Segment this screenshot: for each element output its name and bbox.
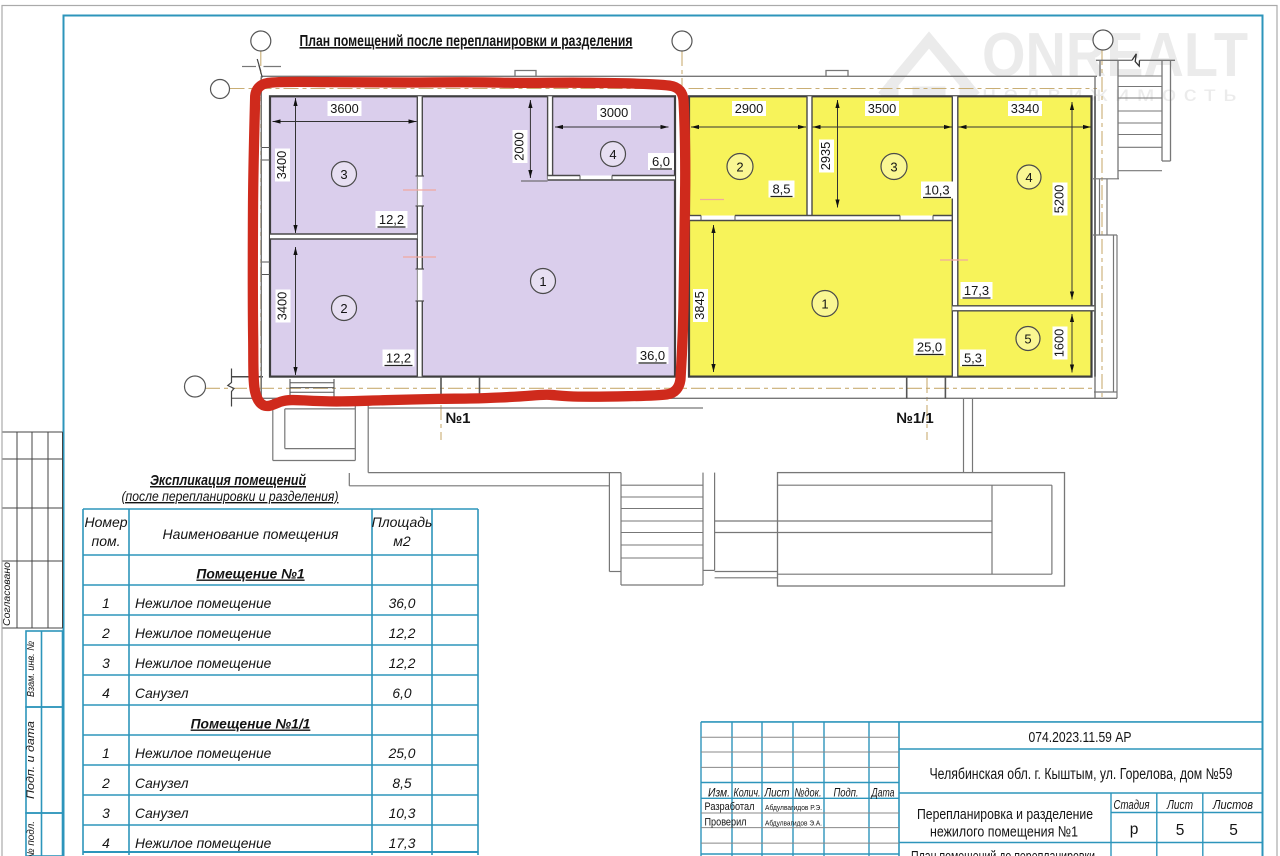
svg-text:м2: м2 [393, 533, 411, 549]
svg-text:2900: 2900 [735, 101, 763, 116]
svg-text:3: 3 [102, 806, 110, 821]
svg-text:3500: 3500 [868, 101, 896, 116]
svg-text:4: 4 [102, 686, 110, 701]
svg-text:Абдулвагидов Э.А.: Абдулвагидов Э.А. [765, 819, 822, 828]
svg-text:5: 5 [1176, 822, 1185, 839]
svg-text:1: 1 [102, 746, 110, 761]
svg-text:Номер: Номер [84, 514, 127, 530]
svg-text:Помещение №1/1: Помещение №1/1 [191, 717, 311, 732]
svg-text:36,0: 36,0 [389, 596, 416, 611]
svg-text:5,3: 5,3 [964, 351, 982, 366]
svg-text:№ подл.: № подл. [26, 821, 37, 856]
svg-text:План помещений после переплани: План помещений после перепланировки и ра… [300, 33, 633, 50]
svg-text:3: 3 [890, 159, 897, 174]
svg-text:Подп. и дата: Подп. и дата [25, 721, 37, 799]
svg-text:3340: 3340 [1011, 101, 1039, 116]
svg-text:4: 4 [102, 836, 110, 851]
svg-text:Нежилое помещение: Нежилое помещение [135, 656, 272, 671]
svg-text:074.2023.11.59 АР: 074.2023.11.59 АР [1029, 729, 1132, 746]
svg-text:1: 1 [539, 274, 546, 289]
svg-text:1: 1 [102, 596, 110, 611]
svg-text:10,3: 10,3 [389, 806, 416, 821]
svg-text:Санузел: Санузел [135, 686, 189, 701]
svg-text:5: 5 [1229, 822, 1238, 839]
svg-text:6,0: 6,0 [392, 686, 412, 701]
svg-text:Лист: Лист [1166, 798, 1193, 812]
svg-text:Челябинская обл. г. Кыштым, ул: Челябинская обл. г. Кыштым, ул. Горелова… [930, 766, 1233, 783]
svg-text:Проверил: Проверил [705, 817, 747, 829]
svg-text:Изм.: Изм. [708, 786, 730, 800]
svg-text:Экспликация помещений: Экспликация помещений [150, 472, 306, 489]
svg-text:Стадия: Стадия [1114, 798, 1150, 812]
svg-text:2000: 2000 [511, 132, 526, 160]
svg-text:Подп.: Подп. [834, 786, 859, 800]
svg-text:р: р [1130, 821, 1139, 838]
svg-text:№док.: №док. [795, 786, 822, 800]
svg-text:3000: 3000 [600, 105, 628, 120]
svg-text:№1/1: №1/1 [896, 410, 934, 427]
svg-text:Листов: Листов [1212, 798, 1253, 812]
svg-text:12,2: 12,2 [389, 626, 416, 641]
svg-text:2: 2 [101, 626, 110, 641]
svg-text:Санузел: Санузел [135, 776, 189, 791]
svg-text:2935: 2935 [818, 142, 833, 170]
svg-text:План помещений до перепланиров: План помещений до перепланировки [911, 848, 1095, 856]
svg-text:Дата: Дата [870, 786, 895, 800]
svg-text:17,3: 17,3 [389, 836, 416, 851]
svg-text:12,2: 12,2 [379, 212, 404, 227]
svg-text:10,3: 10,3 [924, 183, 949, 198]
svg-text:Абдулвагидов Р.Э.: Абдулвагидов Р.Э. [765, 803, 822, 812]
svg-text:3400: 3400 [274, 292, 289, 320]
svg-text:ONREALT: ONREALT [982, 21, 1248, 90]
svg-text:4: 4 [609, 147, 616, 162]
svg-text:Помещение №1: Помещение №1 [196, 567, 304, 582]
svg-text:Наименование помещения: Наименование помещения [162, 526, 339, 542]
svg-text:8,5: 8,5 [772, 182, 790, 197]
svg-text:8,5: 8,5 [392, 776, 412, 791]
svg-text:3: 3 [102, 656, 110, 671]
svg-text:36,0: 36,0 [640, 348, 665, 363]
svg-text:нежилого помещения №1: нежилого помещения №1 [930, 824, 1078, 841]
svg-text:пом.: пом. [92, 533, 121, 549]
svg-text:Санузел: Санузел [135, 806, 189, 821]
svg-text:25,0: 25,0 [917, 340, 942, 355]
svg-text:17,3: 17,3 [964, 283, 989, 298]
svg-text:2: 2 [340, 301, 347, 316]
svg-text:3400: 3400 [274, 151, 289, 179]
svg-text:3600: 3600 [330, 101, 358, 116]
svg-text:12,2: 12,2 [386, 351, 411, 366]
svg-text:5: 5 [1024, 331, 1031, 346]
svg-text:Перепланировка и разделение: Перепланировка и разделение [917, 806, 1093, 823]
svg-text:Нежилое помещение: Нежилое помещение [135, 626, 272, 641]
svg-text:(после перепланировки и раздел: (после перепланировки и разделения) [122, 488, 339, 504]
svg-text:Лист: Лист [764, 786, 790, 800]
svg-text:12,2: 12,2 [389, 656, 416, 671]
svg-text:Взам. инв. №: Взам. инв. № [26, 641, 37, 697]
svg-text:5200: 5200 [1051, 185, 1066, 213]
svg-text:6,0: 6,0 [652, 154, 670, 169]
svg-text:4: 4 [1025, 170, 1032, 185]
svg-text:1600: 1600 [1051, 329, 1066, 357]
svg-text:Нежилое помещение: Нежилое помещение [135, 596, 272, 611]
svg-text:№1: №1 [445, 410, 470, 427]
svg-text:Нежилое помещение: Нежилое помещение [135, 836, 272, 851]
svg-text:Площадь: Площадь [372, 514, 433, 530]
svg-text:Согласовано: Согласовано [2, 562, 13, 626]
svg-text:2: 2 [101, 776, 110, 791]
svg-text:Колич.: Колич. [734, 786, 761, 800]
svg-text:3845: 3845 [692, 291, 707, 319]
svg-text:25,0: 25,0 [388, 746, 416, 761]
svg-text:3: 3 [340, 167, 347, 182]
svg-text:Нежилое помещение: Нежилое помещение [135, 746, 272, 761]
svg-text:2: 2 [736, 159, 743, 174]
svg-text:Разработал: Разработал [705, 801, 755, 813]
svg-text:1: 1 [821, 296, 828, 311]
